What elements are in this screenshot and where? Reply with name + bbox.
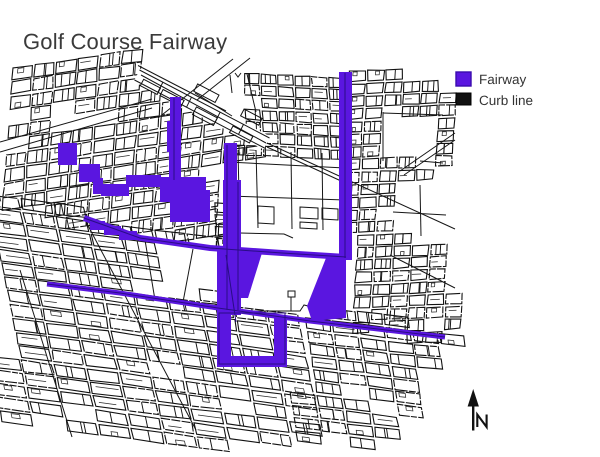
svg-text:Golf Course Fairway: Golf Course Fairway xyxy=(23,29,227,54)
svg-text:Fairway: Fairway xyxy=(479,72,527,87)
svg-text:Curb line: Curb line xyxy=(479,93,533,108)
